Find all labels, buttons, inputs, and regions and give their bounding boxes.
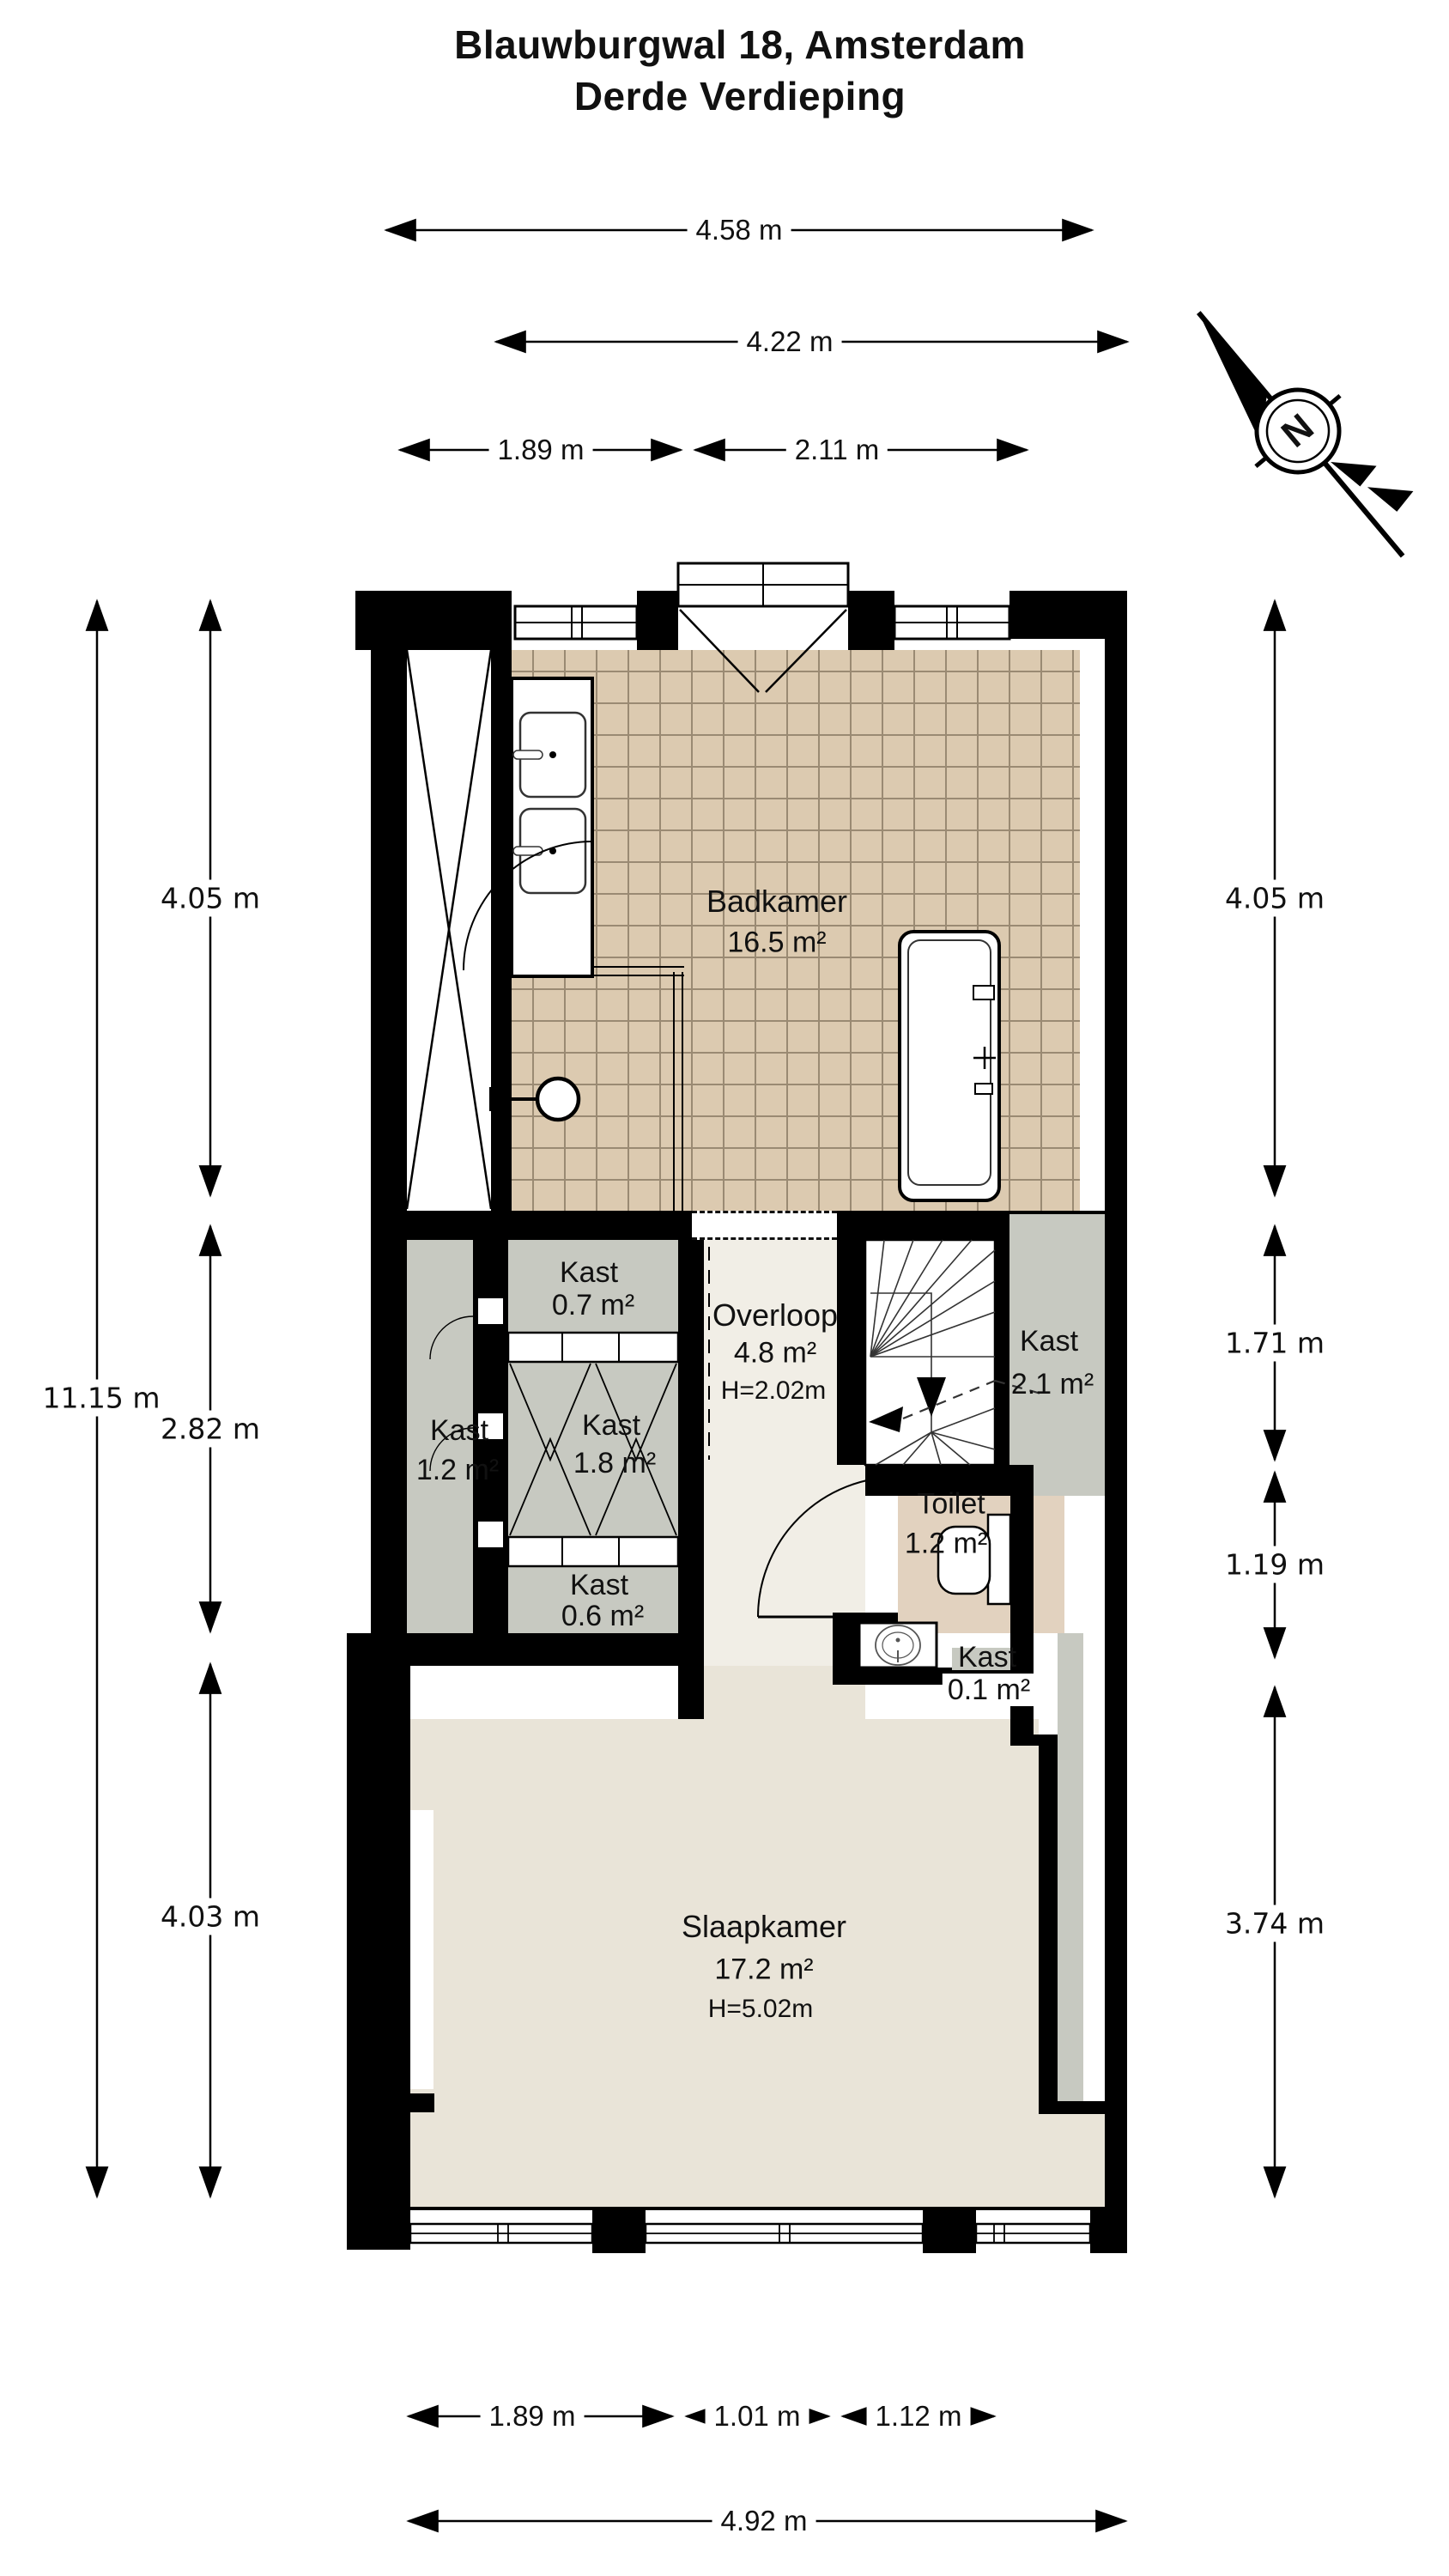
kast-bottom-name: Kast (570, 1569, 628, 1601)
dim-top-right: 2.11 m (786, 434, 888, 466)
dim-right-lower-middle: 1.19 m (1220, 1546, 1330, 1583)
shaft-area (407, 650, 491, 1211)
north-compass-label: N (1274, 406, 1322, 457)
window-top-right (894, 606, 1009, 639)
dim-bottom-total: 4.92 m (712, 2505, 816, 2537)
dim-top-total: 4.58 m (688, 214, 791, 246)
page-title-line1: Blauwburgwal 18, Amsterdam (454, 21, 1026, 68)
dim-top-left: 1.89 m (489, 434, 593, 466)
dim-left-bottom: 4.03 m (155, 1899, 265, 1935)
badkamer-overloop-opening (692, 1211, 837, 1240)
kast-left-name: Kast (430, 1414, 488, 1447)
floorplan-page: Blauwburgwal 18, Amsterdam Derde Verdiep… (0, 0, 1449, 2576)
dim-bottom-right: 1.12 m (867, 2400, 971, 2433)
badkamer-area: 16.5 m² (727, 927, 826, 960)
dim-right-upper-middle: 1.71 m (1220, 1325, 1330, 1362)
kast-top-area: 0.7 m² (552, 1289, 634, 1321)
dim-left-total: 11.15 m (37, 1380, 165, 1417)
page-title-line2: Derde Verdieping (574, 73, 906, 119)
slaapkamer-ceiling: H=5.02m (708, 1995, 814, 2024)
slaapkamer-floor-right (1039, 2111, 1105, 2207)
dim-right-bottom: 3.74 m (1220, 1905, 1330, 1942)
stairwell-floor (865, 1240, 995, 1465)
slaapkamer-area: 17.2 m² (714, 1953, 813, 1987)
windows-bottom (410, 2224, 1090, 2243)
kast-top-name: Kast (560, 1256, 618, 1289)
kast-center-name: Kast (582, 1409, 640, 1442)
kast-bottom-area: 0.6 m² (561, 1600, 644, 1632)
window-top-left (515, 606, 637, 639)
dim-top-inner: 4.22 m (738, 325, 842, 358)
kast-stairs-name: Kast (1020, 1325, 1078, 1358)
kast-stairs-area: 2.1 m² (1011, 1368, 1094, 1400)
dim-bottom-left: 1.89 m (481, 2400, 585, 2433)
dim-left-top: 4.05 m (155, 880, 265, 917)
right-niche-strip (1058, 1633, 1083, 2101)
kast-small-name: Kast (958, 1641, 1016, 1674)
slaapkamer-passage (692, 1666, 865, 1719)
left-wall-recess (410, 1810, 433, 2089)
dim-bottom-center: 1.01 m (706, 2400, 809, 2433)
overloop-floor-lower (692, 1465, 865, 1666)
overloop-name: Overloop (712, 1297, 838, 1334)
dim-left-middle: 2.82 m (155, 1411, 265, 1448)
overloop-ceiling: H=2.02m (721, 1376, 827, 1406)
toilet-name: Toilet (917, 1488, 985, 1522)
toilet-area: 1.2 m² (905, 1528, 987, 1561)
kast-left-area: 1.2 m² (416, 1454, 499, 1486)
badkamer-name: Badkamer (706, 884, 847, 920)
overloop-area: 4.8 m² (734, 1337, 816, 1370)
kast-center-area: 1.8 m² (573, 1447, 656, 1479)
dim-right-top: 4.05 m (1220, 880, 1330, 917)
slaapkamer-name: Slaapkamer (682, 1909, 846, 1945)
kast-small-area: 0.1 m² (943, 1674, 1035, 1706)
